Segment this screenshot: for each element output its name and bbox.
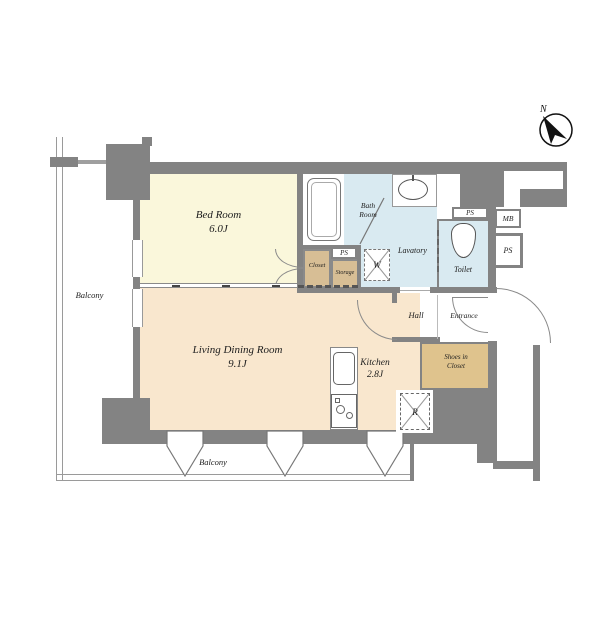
wall-entrance-lower [477,440,497,463]
wall-hall-bottom [392,337,440,342]
bathtub-inner [311,182,337,237]
living-name: Living Dining Room [160,344,315,358]
pillar-notch [142,137,152,146]
wall-top [148,162,500,174]
compass-north-text: N [539,104,548,115]
sliding-partition-tick-2 [222,285,230,287]
lavatory-door-line [400,290,430,291]
stove-burner-small [346,412,353,419]
window-left-upper [132,240,143,277]
balcony-window-2 [266,430,304,478]
balcony-fence-top-bar [50,157,78,167]
balcony-window-1 [166,430,204,478]
floor-plan: W R MB PS PS PS Bed Room 6.0J Living Din… [0,0,614,619]
entrance-label: Entrance [438,311,490,320]
balcony-fence-left [56,137,63,481]
wall-lower-right-post [533,345,540,481]
wall-lower-right-band [493,461,538,469]
balcony-window-3 [366,430,404,478]
meter-box-label: MB [503,214,514,223]
shoes-closet-line1: Shoes in [424,353,488,362]
kitchen-label: Kitchen 2.8J [346,358,404,382]
sink-faucet [412,175,414,181]
wall-right-of-shoes-closet [488,341,497,390]
refrigerator-label: R [401,394,429,429]
wall-mid-right [430,287,497,293]
living-label: Living Dining Room 9.1J [160,344,315,372]
pillar-top-left [106,144,150,200]
storage-label: Storage [330,270,360,278]
bath-name-line2: Room [345,210,391,219]
hall-label: Hall [395,310,437,321]
kitchen-name: Kitchen [346,358,404,370]
bedroom-size: 6.0J [150,223,287,237]
stove-burner-large [336,405,345,414]
sliding-partition-tick-1 [172,285,180,287]
pipe-shaft-storage: PS [331,247,357,259]
living-size: 9.1J [160,358,315,372]
entrance-outer-door-swing [496,288,551,343]
pipe-shaft-right: PS [493,233,523,268]
lavatory-label: Lavatory [385,246,440,256]
balcony-fence-connector [78,160,108,164]
compass-icon: N [528,92,590,156]
top-right-niche-vertical [504,171,520,207]
kitchen-size: 2.8J [346,370,404,382]
shoes-closet-label: Shoes in Closet [424,353,488,371]
pipe-shaft-right-label: PS [504,246,513,255]
pipe-shaft-toilet-label: PS [466,209,474,217]
pipe-shaft-storage-label: PS [340,249,348,257]
hatched-strip [298,285,358,288]
balcony-bottom-label: Balcony [185,457,241,468]
sliding-partition-tick-3 [272,285,280,287]
closet-label: Closet [302,262,332,270]
sink-basin [398,179,428,200]
toilet-label: Toilet [440,265,486,275]
refrigerator-space: R [400,393,430,430]
bedroom-label: Bed Room 6.0J [150,209,287,237]
stove-switch [335,398,340,403]
pipe-shaft-toilet: PS [452,207,488,219]
bath-name-line1: Bath [345,201,391,210]
bath-label: Bath Room [345,201,391,220]
balcony-left-label: Balcony [62,290,117,301]
window-left-lower [132,289,143,327]
bedroom-name: Bed Room [150,209,287,223]
balcony-fence-bottom [56,474,413,481]
shoes-closet-line2: Closet [424,362,488,371]
meter-box: MB [495,209,521,228]
